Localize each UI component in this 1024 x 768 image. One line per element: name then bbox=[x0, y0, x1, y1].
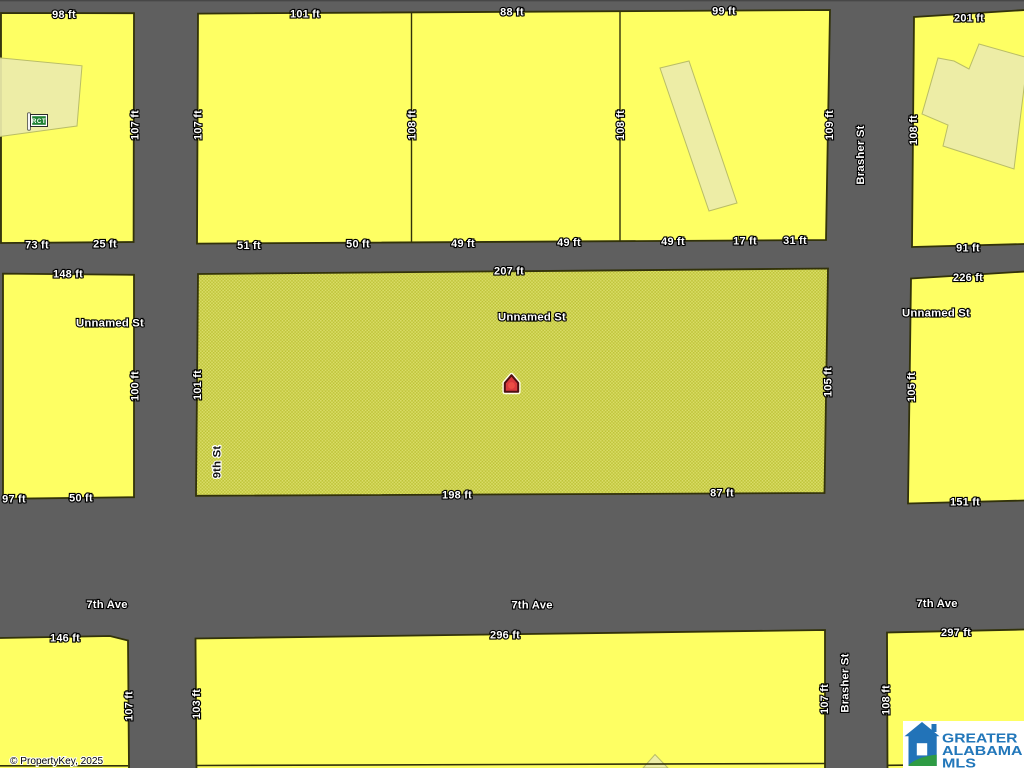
svg-text:151 ft: 151 ft bbox=[950, 496, 980, 508]
svg-text:Brasher St: Brasher St bbox=[855, 125, 867, 184]
svg-text:103 ft: 103 ft bbox=[191, 689, 203, 719]
svg-text:88 ft: 88 ft bbox=[500, 6, 524, 18]
svg-text:107 ft: 107 ft bbox=[123, 691, 135, 721]
svg-text:31 ft: 31 ft bbox=[783, 235, 807, 247]
svg-text:207 ft: 207 ft bbox=[494, 265, 524, 277]
svg-text:108 ft: 108 ft bbox=[615, 110, 627, 140]
svg-text:73 ft: 73 ft bbox=[25, 239, 49, 251]
svg-text:7th Ave: 7th Ave bbox=[511, 599, 552, 611]
svg-text:91 ft: 91 ft bbox=[956, 242, 980, 254]
svg-text:105 ft: 105 ft bbox=[906, 372, 918, 402]
svg-text:9th St: 9th St bbox=[211, 446, 223, 479]
svg-text:101 ft: 101 ft bbox=[290, 8, 320, 20]
svg-text:7th Ave: 7th Ave bbox=[916, 598, 957, 610]
svg-text:7th Ave: 7th Ave bbox=[86, 599, 127, 611]
svg-text:107 ft: 107 ft bbox=[819, 684, 831, 714]
svg-text:25 ft: 25 ft bbox=[93, 238, 117, 250]
svg-text:51 ft: 51 ft bbox=[237, 240, 261, 252]
svg-text:50 ft: 50 ft bbox=[69, 492, 93, 504]
svg-text:17 ft: 17 ft bbox=[733, 235, 757, 247]
svg-text:201 ft: 201 ft bbox=[954, 12, 984, 24]
svg-text:MLS: MLS bbox=[942, 757, 976, 768]
svg-text:105 ft: 105 ft bbox=[822, 367, 834, 397]
svg-text:198 ft: 198 ft bbox=[442, 489, 472, 501]
svg-text:50 ft: 50 ft bbox=[346, 238, 370, 250]
svg-text:107 ft: 107 ft bbox=[129, 110, 141, 140]
svg-text:Brasher St: Brasher St bbox=[839, 653, 851, 712]
svg-text:109 ft: 109 ft bbox=[824, 110, 836, 140]
svg-text:RCT: RCT bbox=[32, 118, 46, 125]
svg-text:Unnamed St: Unnamed St bbox=[498, 311, 566, 323]
svg-text:226 ft: 226 ft bbox=[953, 272, 983, 284]
svg-text:107 ft: 107 ft bbox=[192, 110, 204, 140]
svg-text:148 ft: 148 ft bbox=[53, 268, 83, 280]
svg-text:108 ft: 108 ft bbox=[880, 685, 892, 715]
svg-text:97 ft: 97 ft bbox=[2, 493, 26, 505]
svg-text:49 ft: 49 ft bbox=[557, 237, 581, 249]
svg-text:146 ft: 146 ft bbox=[50, 632, 80, 644]
svg-text:98 ft: 98 ft bbox=[52, 9, 76, 21]
svg-text:87 ft: 87 ft bbox=[710, 487, 734, 499]
svg-text:108 ft: 108 ft bbox=[406, 110, 418, 140]
svg-text:49 ft: 49 ft bbox=[661, 236, 685, 248]
svg-text:© PropertyKey, 2025: © PropertyKey, 2025 bbox=[10, 756, 103, 767]
svg-text:101 ft: 101 ft bbox=[192, 370, 204, 400]
svg-text:108 ft: 108 ft bbox=[908, 115, 920, 145]
svg-text:297 ft: 297 ft bbox=[941, 627, 971, 639]
svg-text:99 ft: 99 ft bbox=[712, 5, 736, 17]
svg-text:100 ft: 100 ft bbox=[129, 371, 141, 401]
svg-text:Unnamed St: Unnamed St bbox=[76, 317, 144, 329]
svg-text:Unnamed St: Unnamed St bbox=[902, 307, 970, 319]
svg-text:296 ft: 296 ft bbox=[490, 629, 520, 641]
svg-text:49 ft: 49 ft bbox=[451, 238, 475, 250]
